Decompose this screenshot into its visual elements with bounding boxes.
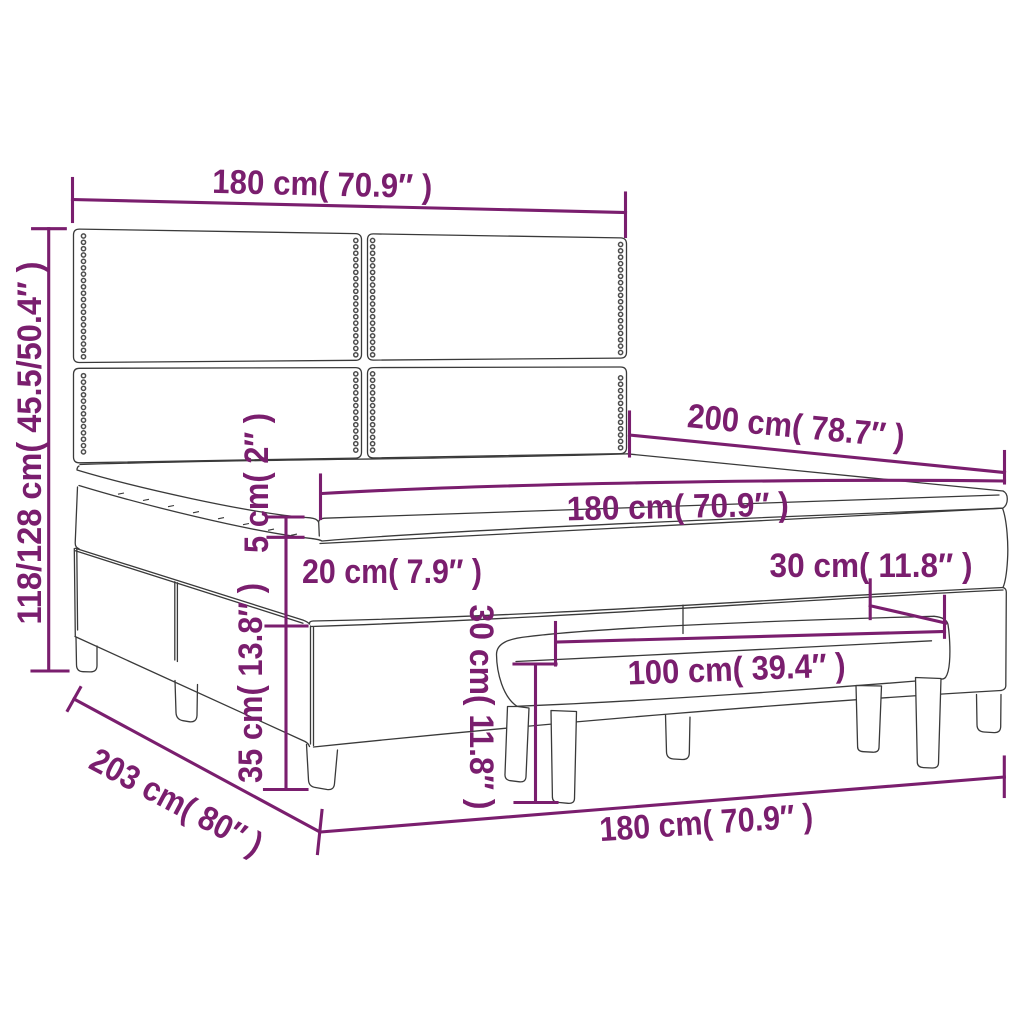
svg-text:5 cm( 2″ ): 5 cm( 2″ ): [238, 413, 276, 553]
svg-text:35 cm( 13.8″ ): 35 cm( 13.8″ ): [232, 583, 270, 783]
svg-text:180 cm( 70.9″ ): 180 cm( 70.9″ ): [566, 486, 789, 529]
svg-text:30 cm( 11.8″ ): 30 cm( 11.8″ ): [462, 605, 500, 810]
svg-text:180 cm( 70.9″ ): 180 cm( 70.9″ ): [212, 163, 433, 206]
svg-text:30 cm( 11.8″ ): 30 cm( 11.8″ ): [770, 547, 973, 585]
svg-text:20 cm( 7.9″ ): 20 cm( 7.9″ ): [302, 553, 482, 591]
svg-text:118/128 cm( 45.5/50.4″ ): 118/128 cm( 45.5/50.4″ ): [11, 262, 49, 625]
